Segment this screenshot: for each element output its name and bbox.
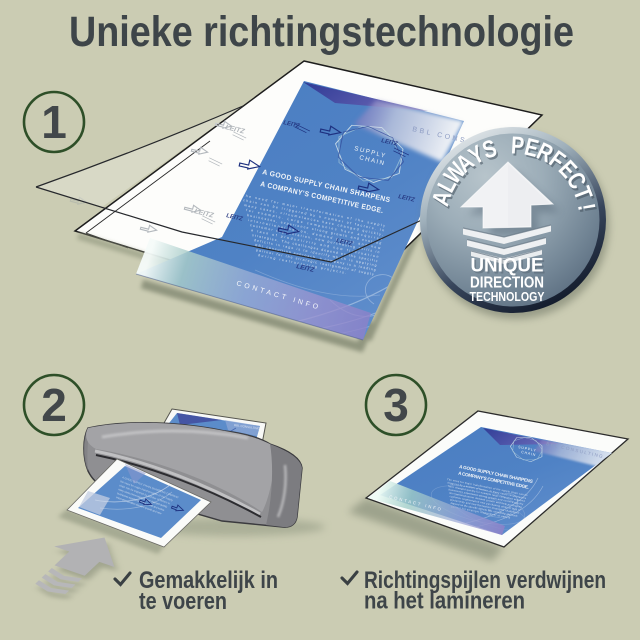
svg-text:1: 1 [41,96,67,148]
svg-text:TECHNOLOGY: TECHNOLOGY [470,289,545,304]
svg-text:3: 3 [383,379,409,431]
svg-text:2: 2 [41,379,67,431]
svg-text:na het lamineren: na het lamineren [364,589,525,615]
svg-text:te voeren: te voeren [139,589,227,615]
svg-text:UNIQUE: UNIQUE [471,256,544,277]
svg-text:Unieke richtingstechnologie: Unieke richtingstechnologie [69,8,574,55]
